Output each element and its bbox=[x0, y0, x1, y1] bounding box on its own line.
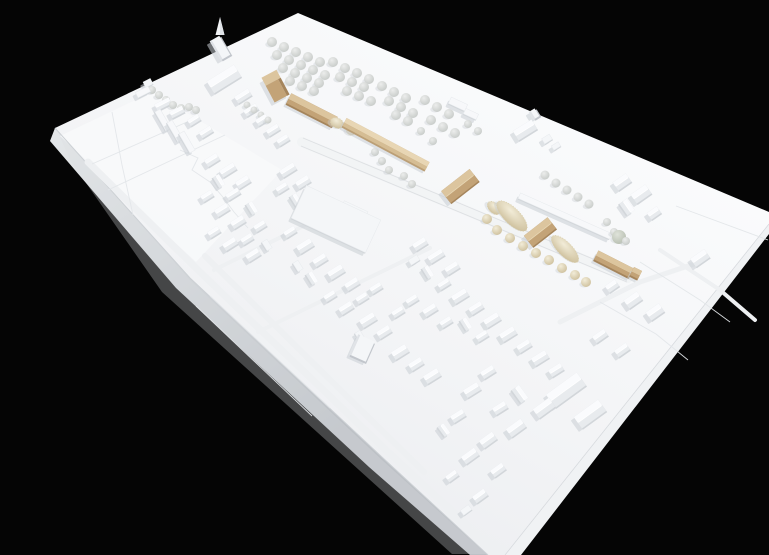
tree-canopy bbox=[291, 47, 301, 57]
tree-canopy bbox=[309, 86, 319, 96]
tree-canopy bbox=[378, 157, 386, 165]
tree-canopy bbox=[585, 200, 594, 209]
tree-canopy bbox=[284, 55, 294, 65]
tree-canopy bbox=[265, 117, 272, 124]
tree-canopy bbox=[450, 128, 460, 138]
tree-canopy bbox=[482, 214, 492, 224]
tree-canopy bbox=[384, 96, 394, 106]
tree-canopy bbox=[505, 233, 515, 243]
tree-canopy bbox=[169, 101, 177, 109]
tree-canopy bbox=[192, 106, 200, 114]
tree-canopy bbox=[371, 148, 379, 156]
tree-canopy bbox=[389, 87, 399, 97]
tree-canopy bbox=[400, 172, 408, 180]
tree-canopy bbox=[377, 81, 387, 91]
tree-canopy bbox=[352, 68, 362, 78]
tree-canopy bbox=[518, 241, 528, 251]
tree-canopy bbox=[492, 225, 502, 235]
tree-canopy bbox=[408, 180, 416, 188]
tree-canopy bbox=[296, 60, 306, 70]
tree-canopy bbox=[603, 218, 611, 226]
architectural-model-photo bbox=[0, 0, 769, 555]
tree-canopy bbox=[285, 76, 295, 86]
tree-canopy bbox=[432, 102, 442, 112]
tree-canopy bbox=[385, 166, 393, 174]
tree-canopy bbox=[342, 86, 352, 96]
tree-canopy bbox=[563, 186, 572, 195]
tree-canopy bbox=[570, 270, 580, 280]
tree-canopy bbox=[622, 237, 630, 245]
model-scene bbox=[0, 0, 769, 555]
tree-canopy bbox=[531, 248, 541, 258]
tree-canopy bbox=[279, 42, 289, 52]
tree-canopy bbox=[420, 95, 430, 105]
tree-canopy bbox=[444, 109, 454, 119]
tree-canopy bbox=[417, 127, 425, 135]
tree-canopy bbox=[403, 116, 413, 126]
tree-canopy bbox=[391, 110, 401, 120]
tree-canopy bbox=[155, 91, 163, 99]
tree-canopy bbox=[251, 107, 258, 114]
tree-canopy bbox=[541, 171, 550, 180]
tree-canopy bbox=[544, 255, 554, 265]
tree-canopy bbox=[366, 96, 376, 106]
tree-canopy bbox=[581, 277, 591, 287]
tree-canopy bbox=[267, 37, 277, 47]
tree-canopy bbox=[335, 72, 345, 82]
tree-canopy bbox=[308, 65, 318, 75]
tree-canopy bbox=[438, 122, 448, 132]
tree-canopy bbox=[429, 137, 437, 145]
tree-canopy bbox=[297, 81, 307, 91]
tree-canopy bbox=[303, 52, 313, 62]
tree-canopy bbox=[315, 57, 325, 67]
tree-canopy bbox=[340, 63, 350, 73]
tree-canopy bbox=[401, 93, 411, 103]
tree-canopy bbox=[185, 103, 193, 111]
tree-canopy bbox=[272, 50, 282, 60]
tree-canopy bbox=[278, 63, 288, 73]
tree-canopy bbox=[320, 70, 330, 80]
tree-canopy bbox=[574, 193, 583, 202]
tree-canopy bbox=[359, 82, 369, 92]
tree-canopy bbox=[328, 57, 338, 67]
tree-canopy bbox=[354, 91, 364, 101]
tree-canopy bbox=[474, 127, 482, 135]
tree-canopy bbox=[464, 120, 472, 128]
tree-canopy bbox=[347, 77, 357, 87]
tree-canopy bbox=[557, 263, 567, 273]
tree-canopy bbox=[552, 179, 561, 188]
tree-canopy bbox=[426, 115, 436, 125]
